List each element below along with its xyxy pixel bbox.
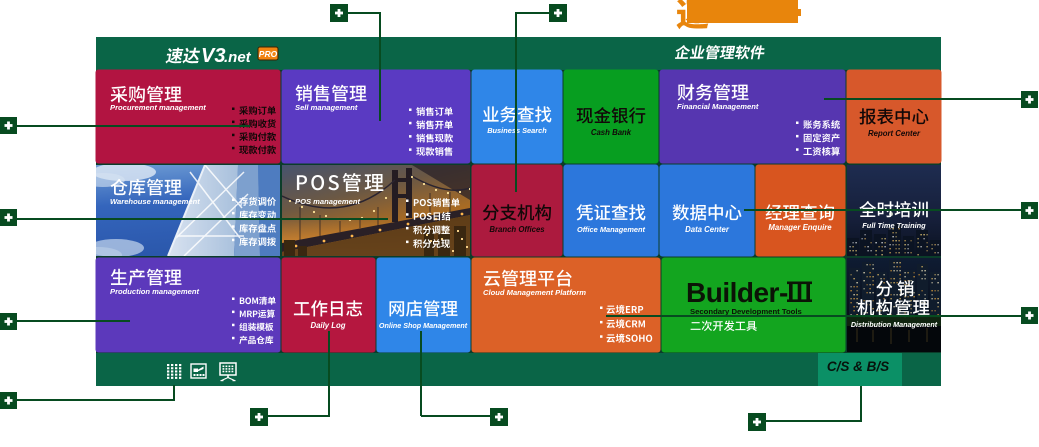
svg-text:Distribution Management: Distribution Management (851, 320, 938, 329)
svg-text:Warehouse management: Warehouse management (110, 197, 200, 206)
svg-text:Online Shop Management: Online Shop Management (379, 321, 468, 330)
svg-text:POS management: POS management (295, 197, 360, 206)
svg-text:Data Center: Data Center (685, 225, 730, 234)
svg-text:Full Time Training: Full Time Training (862, 221, 926, 230)
svg-text:Business Search: Business Search (487, 126, 547, 135)
svg-text:V3: V3 (201, 45, 225, 67)
svg-text:Daily Log: Daily Log (310, 321, 345, 330)
svg-text:Secondary Development Tools: Secondary Development Tools (690, 307, 802, 316)
svg-text:Office Management: Office Management (577, 225, 646, 234)
svg-text:Cloud Management Platform: Cloud Management Platform (483, 288, 586, 297)
svg-text:Cash Bank: Cash Bank (591, 128, 632, 137)
svg-text:Manager Enquire: Manager Enquire (768, 223, 832, 232)
svg-text:C/S & B/S: C/S & B/S (827, 359, 889, 374)
svg-text:Procurement management: Procurement management (110, 103, 206, 112)
svg-text:Sell management: Sell management (295, 103, 358, 112)
svg-text:PRO: PRO (259, 49, 278, 59)
svg-text:Branch Offices: Branch Offices (489, 225, 545, 234)
svg-text:Financial Management: Financial Management (677, 102, 759, 111)
svg-text:.net: .net (224, 49, 252, 66)
svg-text:Production management: Production management (110, 287, 199, 296)
svg-text:Report Center: Report Center (868, 129, 921, 138)
svg-text:Builder-: Builder- (686, 277, 788, 308)
